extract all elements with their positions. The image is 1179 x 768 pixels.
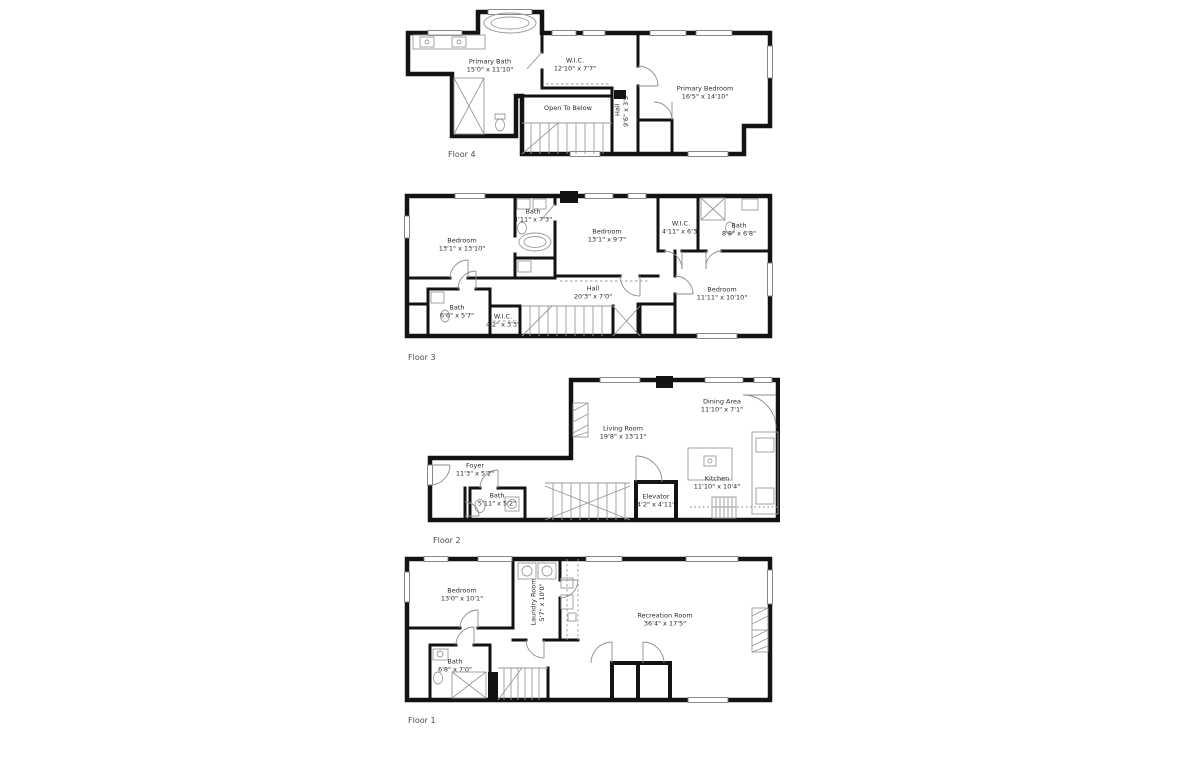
room-label-laundry-room: Laundry Room 5'7" x 10'0" <box>530 578 547 625</box>
room-name: Bedroom <box>441 587 483 595</box>
room-name: Bath <box>440 304 474 312</box>
room-name: Kitchen <box>694 475 740 483</box>
room-name: Bedroom <box>439 237 485 245</box>
floor-1-plan: Bedroom 13'0" x 10'1" Laundry Room 5'7" … <box>400 550 780 730</box>
room-label-primary-bath: Primary Bath 15'0" x 11'10" <box>467 58 513 75</box>
shower-icon <box>454 78 484 134</box>
room-dims: 13'1" x 13'10" <box>439 245 485 253</box>
room-name: Hall <box>614 93 622 127</box>
room-dims: 13'0" x 10'1" <box>441 595 483 603</box>
washer-dryer-icons <box>518 563 556 579</box>
room-label-bath-f2: Bath 5'11" x 5'2" <box>478 492 516 509</box>
room-label-open-to-below: Open To Below <box>544 104 592 112</box>
room-dims: 8'8" x 6'8" <box>722 230 756 238</box>
room-dims: 11'10" x 10'4" <box>694 483 740 491</box>
room-dims: 12'10" x 7'7" <box>554 65 596 73</box>
room-label-elevator: Elevator 4'2" x 4'11" <box>637 493 675 510</box>
room-name: Bedroom <box>588 228 626 236</box>
room-dims: 4'2" x 3'3" <box>486 321 520 329</box>
room-name: Foyer <box>456 462 494 470</box>
room-label-bath-f1: Bath 6'8" x 7'0" <box>438 658 472 675</box>
room-dims: 4'11" x 6'3" <box>662 228 700 236</box>
bathtub-icon <box>484 13 536 33</box>
room-label-living-room: Living Room 19'8" x 13'11" <box>600 425 646 442</box>
room-dims: 11'10" x 7'1" <box>701 406 743 414</box>
room-label-foyer: Foyer 11'3" x 5'2" <box>456 462 494 479</box>
stairs <box>522 123 612 154</box>
room-label-wic-f4: W.I.C. 12'10" x 7'7" <box>554 57 596 74</box>
room-name: Dining Area <box>701 398 743 406</box>
hatched-alcove <box>752 608 768 652</box>
floor-3-caption: Floor 3 <box>408 353 436 362</box>
room-label-bedroom-f1: Bedroom 13'0" x 10'1" <box>441 587 483 604</box>
room-dims: 11'3" x 5'2" <box>456 470 494 478</box>
room-dims: 15'0" x 11'10" <box>467 66 513 74</box>
room-name: Laundry Room <box>530 578 538 625</box>
room-dims: 6'8" x 7'0" <box>438 666 472 674</box>
room-name: Recreation Room <box>637 612 692 620</box>
floor-2-caption: Floor 2 <box>433 536 461 545</box>
room-dims: 11'11" x 10'10" <box>697 294 748 302</box>
room-dims: 5'7" x 10'0" <box>538 578 546 625</box>
room-label-kitchen: Kitchen 11'10" x 10'4" <box>694 475 740 492</box>
room-name: Primary Bath <box>467 58 513 66</box>
room-dims: 36'4" x 17'5" <box>637 620 692 628</box>
room-label-bedroom-mid: Bedroom 13'1" x 9'7" <box>588 228 626 245</box>
stairs <box>522 306 640 336</box>
room-name: Hall <box>574 285 612 293</box>
floor-3-drawing <box>400 186 780 368</box>
room-dims: 5'11" x 5'2" <box>478 500 516 508</box>
room-label-dining-area: Dining Area 11'10" x 7'1" <box>701 398 743 415</box>
bathtub-icon <box>519 233 551 251</box>
room-label-bath-topright: Bath 8'8" x 6'8" <box>722 222 756 239</box>
floor-1-caption: Floor 1 <box>408 716 436 725</box>
stairs <box>545 483 630 520</box>
room-name: Open To Below <box>544 104 592 112</box>
floor-4-caption: Floor 4 <box>448 150 476 159</box>
stairs <box>498 668 548 700</box>
floorplan-sheet: Primary Bath 15'0" x 11'10" W.I.C. 12'10… <box>0 0 1179 768</box>
room-label-bedroom-right: Bedroom 11'11" x 10'10" <box>697 286 748 303</box>
room-label-bath-bottomleft: Bath 6'6" x 5'7" <box>440 304 474 321</box>
room-name: Primary Bedroom <box>677 85 734 93</box>
room-label-hall-f4: Hall 9'6" x 3'5" <box>614 93 631 127</box>
room-dims: 6'6" x 5'7" <box>440 312 474 320</box>
room-label-primary-bedroom: Primary Bedroom 16'5" x 14'10" <box>677 85 734 102</box>
toilet-icon <box>495 114 505 131</box>
double-vanity-icon <box>413 35 485 49</box>
room-label-bedroom-left: Bedroom 13'1" x 13'10" <box>439 237 485 254</box>
room-label-recreation-room: Recreation Room 36'4" x 17'5" <box>637 612 692 629</box>
room-label-bath-mid: Bath 4'11" x 7'3" <box>514 208 552 225</box>
room-name: W.I.C. <box>486 313 520 321</box>
room-name: Bath <box>722 222 756 230</box>
room-dims: 9'6" x 3'5" <box>622 93 630 127</box>
room-name: Bath <box>478 492 516 500</box>
fireplace-icon <box>573 403 588 437</box>
room-label-hall-f3: Hall 20'3" x 7'0" <box>574 285 612 302</box>
room-name: Bedroom <box>697 286 748 294</box>
floor-1-drawing <box>400 550 780 730</box>
room-dims: 20'3" x 7'0" <box>574 293 612 301</box>
floor-4-plan: Primary Bath 15'0" x 11'10" W.I.C. 12'10… <box>400 8 780 173</box>
room-label-wic-bottom: W.I.C. 4'2" x 3'3" <box>486 313 520 330</box>
floor-3-plan: Bedroom 13'1" x 13'10" Bath 4'11" x 7'3"… <box>400 186 780 368</box>
room-name: Living Room <box>600 425 646 433</box>
room-name: W.I.C. <box>554 57 596 65</box>
room-dims: 19'8" x 13'11" <box>600 433 646 441</box>
room-name: W.I.C. <box>662 220 700 228</box>
room-name: Elevator <box>637 493 675 501</box>
room-label-wic-f3: W.I.C. 4'11" x 6'3" <box>662 220 700 237</box>
room-dims: 4'11" x 7'3" <box>514 216 552 224</box>
room-name: Bath <box>514 208 552 216</box>
room-dims: 4'2" x 4'11" <box>637 501 675 509</box>
floor-2-plan: Living Room 19'8" x 13'11" Dining Area 1… <box>420 370 780 550</box>
room-dims: 13'1" x 9'7" <box>588 236 626 244</box>
shower-icon <box>701 198 725 220</box>
utility-chase <box>561 559 578 640</box>
room-dims: 16'5" x 14'10" <box>677 93 734 101</box>
room-name: Bath <box>438 658 472 666</box>
